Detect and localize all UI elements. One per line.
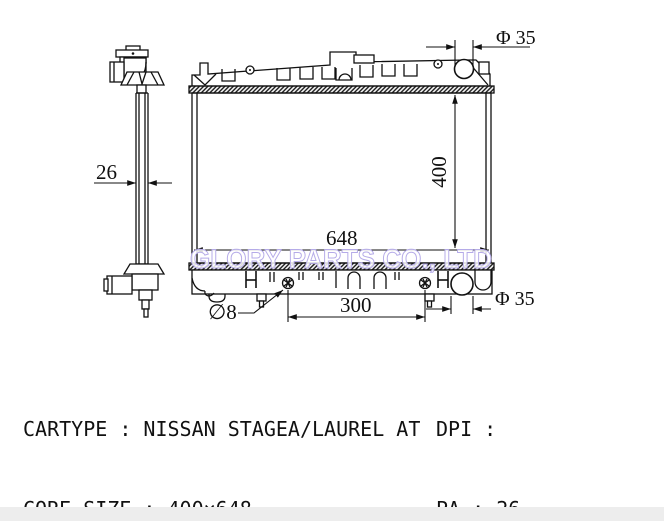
radiator-spec-sheet: Φ 35 400 648 26 ∅8 300 Φ 35 GLORY PARTS … — [0, 0, 664, 521]
spec-column-left: CARTYPE : NISSAN STAGEA/LAUREL AT CORE S… — [23, 363, 420, 521]
dim-phi8-label: ∅8 — [208, 300, 237, 324]
bolt-boss-left — [283, 278, 294, 289]
dim-26-label: 26 — [96, 160, 117, 184]
dim-300-label: 300 — [340, 293, 372, 317]
inlet-pipe — [455, 60, 474, 79]
spec-line-dpi: DPI : — [436, 416, 653, 443]
radiator-technical-drawing: Φ 35 400 648 26 ∅8 300 Φ 35 GLORY PARTS … — [0, 0, 664, 360]
dim-phi35-top-label: Φ 35 — [496, 27, 536, 49]
outlet-pipe — [451, 273, 473, 295]
footer-shadow-band — [0, 507, 664, 521]
dim-400-label: 400 — [427, 156, 451, 188]
bolt-boss-right — [420, 278, 431, 289]
spec-line-cartype: CARTYPE : NISSAN STAGEA/LAUREL AT — [23, 416, 420, 443]
spec-column-right: DPI : PA : 26 CARTON:730*120*595 — [436, 363, 653, 521]
watermark-text: GLORY PARTS CO., LTD — [190, 244, 492, 274]
dim-phi35-bottom-label: Φ 35 — [495, 288, 535, 310]
